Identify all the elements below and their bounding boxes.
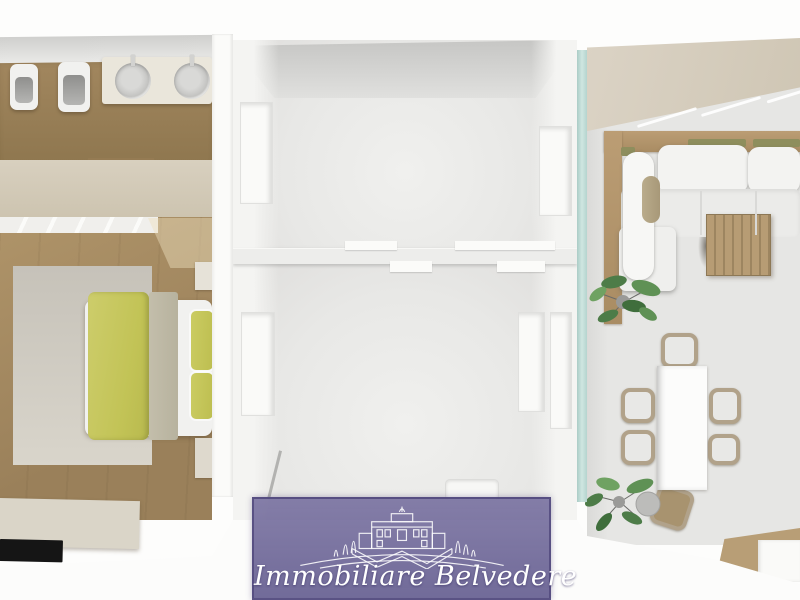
door-jamb xyxy=(345,241,397,250)
watermark-banner: Immobiliare Belvedere xyxy=(252,497,551,600)
door-recess-lower-right-1 xyxy=(518,312,545,412)
coffee-table xyxy=(706,214,771,276)
dining-chair xyxy=(621,388,655,423)
nightstand xyxy=(195,262,212,290)
dining-table xyxy=(657,366,707,490)
bed-pillow-1 xyxy=(191,311,213,370)
tv xyxy=(0,539,63,562)
floor-plan-render: Immobiliare Belvedere xyxy=(0,0,800,600)
central-room-lower xyxy=(233,264,577,522)
faucet-right xyxy=(190,55,194,66)
glass-partition xyxy=(577,50,587,502)
sofa-seat-seam xyxy=(755,191,757,235)
sofa-seat-seam xyxy=(700,191,702,235)
dining-chair xyxy=(709,388,741,424)
bed-duvet-yellow xyxy=(88,292,149,440)
door-jamb xyxy=(455,241,555,250)
door-recess-upper-left xyxy=(240,102,273,204)
toilet xyxy=(58,62,90,112)
sofa-back-cushion xyxy=(658,145,748,193)
sofa-bolster-cushion xyxy=(642,176,660,223)
sink-left xyxy=(115,63,151,99)
faucet-left xyxy=(131,55,135,66)
bed-blanket-fold xyxy=(149,292,178,440)
bed-pillow-2 xyxy=(191,373,213,419)
wardrobe-strip xyxy=(0,217,158,233)
door-jamb xyxy=(390,261,432,272)
bidet xyxy=(10,64,38,110)
central-upper-top-wall xyxy=(233,40,577,98)
sofa-back-cushion xyxy=(748,147,800,193)
sofa-back-accent xyxy=(753,139,800,147)
door-recess-lower-left xyxy=(241,312,275,416)
door-recess-lower-right-2 xyxy=(550,312,572,429)
toilet-bowl xyxy=(63,75,85,105)
plant-upper xyxy=(586,274,670,332)
sink-right xyxy=(174,63,210,99)
dining-chair xyxy=(708,434,740,465)
villa-logo-icon xyxy=(267,503,537,569)
dining-chair xyxy=(661,333,698,368)
agency-name: Immobiliare Belvedere xyxy=(254,561,549,592)
door-jamb xyxy=(497,261,545,272)
dining-chair xyxy=(621,430,655,465)
bidet-bowl xyxy=(15,77,33,103)
central-room-upper xyxy=(233,40,577,252)
central-left-wall xyxy=(212,34,233,497)
plant-lower xyxy=(584,476,668,536)
door-recess-upper-right xyxy=(539,126,572,216)
bathroom-bedroom-partition-wall xyxy=(0,160,212,217)
